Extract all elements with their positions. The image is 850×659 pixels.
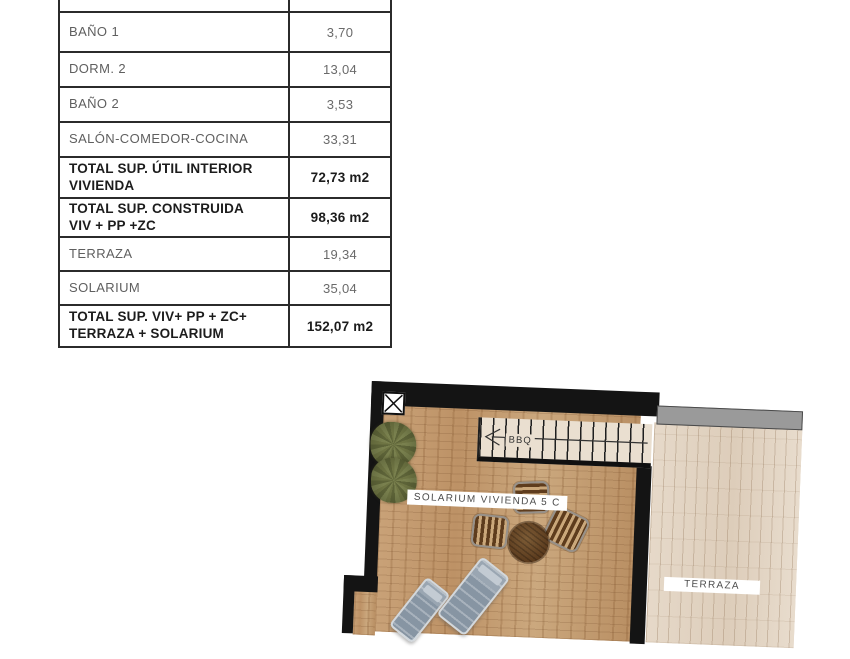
- row-label: TERRAZA: [60, 238, 288, 270]
- table-row: BAÑO 1 3,70: [60, 13, 390, 53]
- solarium-floor-extension: [353, 589, 377, 635]
- row-label: TOTAL SUP. ÚTIL INTERIOR VIVIENDA: [60, 158, 288, 197]
- bbq-label: BBQ: [505, 433, 535, 447]
- wall-bottom-left: [342, 575, 355, 633]
- floorplan-spec-page: { "spec_table": { "rows": [ {"label": ""…: [0, 0, 850, 614]
- table-row: TERRAZA 19,34: [60, 238, 390, 272]
- row-label: DORM. 2: [60, 53, 288, 86]
- table-row-clipped: [60, 0, 390, 13]
- table-row-total-util: TOTAL SUP. ÚTIL INTERIOR VIVIENDA 72,73 …: [60, 158, 390, 199]
- row-value: 35,04: [288, 272, 390, 304]
- row-label: BAÑO 1: [60, 13, 288, 51]
- table-row: SALÓN-COMEDOR-COCINA 33,31: [60, 123, 390, 158]
- row-value: 33,31: [288, 123, 390, 156]
- staircase: BBQ: [477, 417, 653, 468]
- row-label: SALÓN-COMEDOR-COCINA: [60, 123, 288, 156]
- row-value: 98,36 m2: [288, 199, 390, 236]
- row-label: SOLARIUM: [60, 272, 288, 304]
- row-value: [288, 0, 390, 11]
- row-label: [60, 0, 288, 11]
- row-value: 13,04: [288, 53, 390, 86]
- table-row: BAÑO 2 3,53: [60, 88, 390, 123]
- chair: [470, 513, 509, 550]
- table-row: SOLARIUM 35,04: [60, 272, 390, 306]
- surface-spec-table: BAÑO 1 3,70 DORM. 2 13,04 BAÑO 2 3,53 SA…: [58, 0, 392, 348]
- table-row: DORM. 2 13,04: [60, 53, 390, 88]
- row-value: 152,07 m2: [288, 306, 390, 346]
- shaft-x-icon: [382, 391, 406, 415]
- table-row-total-global: TOTAL SUP. VIV+ PP + ZC+ TERRAZA + SOLAR…: [60, 306, 390, 346]
- row-value: 19,34: [288, 238, 390, 270]
- row-label: BAÑO 2: [60, 88, 288, 121]
- row-label: TOTAL SUP. CONSTRUIDA VIV + PP +ZC: [60, 199, 288, 236]
- row-value: 3,70: [288, 13, 390, 51]
- row-label: TOTAL SUP. VIV+ PP + ZC+ TERRAZA + SOLAR…: [60, 306, 288, 346]
- row-value: 72,73 m2: [288, 158, 390, 197]
- table-row-total-construida: TOTAL SUP. CONSTRUIDA VIV + PP +ZC 98,36…: [60, 199, 390, 238]
- solarium-floorplan: BBQ SOLARIUM VIVIENDA 5 C TERRAZA: [362, 379, 808, 651]
- row-value: 3,53: [288, 88, 390, 121]
- terraza-floor: [646, 422, 803, 648]
